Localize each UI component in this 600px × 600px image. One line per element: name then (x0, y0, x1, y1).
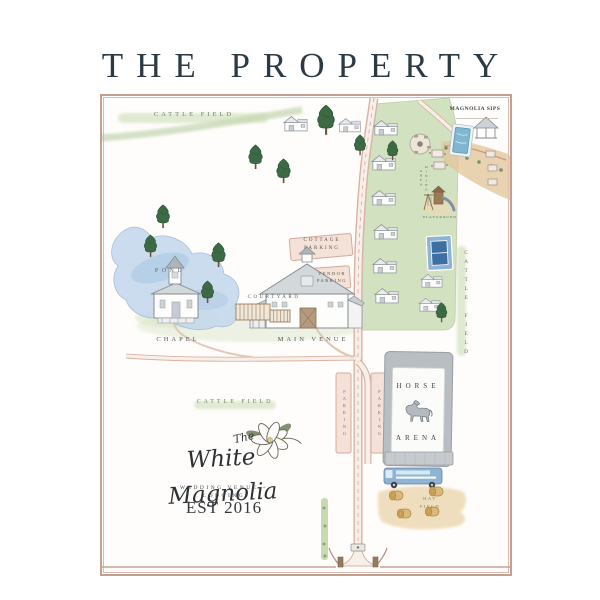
hedge (321, 498, 328, 560)
label-dining-area: DINING AREA (419, 158, 427, 198)
page-title: THE PROPERTY (0, 46, 600, 86)
entry-gate (329, 544, 387, 567)
label-hay-field: HAY FIELD (414, 495, 446, 510)
label-chapel: CHAPEL (150, 335, 206, 345)
label-courtyard: COURTYARD (242, 294, 306, 302)
label-arena: ARENA (392, 433, 444, 444)
equipment-shed (385, 452, 453, 465)
label-cottage-parking: COTTAGE PARKING (298, 237, 346, 252)
label-vendor-parking: VENDOR PARKING (314, 271, 350, 285)
label-horse: HORSE (392, 381, 444, 392)
bus (384, 468, 442, 488)
label-pond: POND (142, 267, 198, 276)
label-cattle-field-right: CATTLE FIELD (460, 248, 472, 360)
label-cattle-field-bottom: CATTLE FIELD (196, 398, 274, 407)
label-main-venue: MAIN VENUE (276, 335, 350, 345)
page: THE PROPERTY (0, 0, 600, 600)
map-frame: CATTLE FIELD MAGNOLIA SIPS DINING AREA P… (100, 94, 512, 576)
label-parking-left: PARKING (336, 376, 351, 450)
pavilion (474, 117, 498, 138)
logo-established: EST 2016 (158, 495, 290, 521)
pickleball-court (426, 235, 453, 270)
label-playground: PLAYGROUND (418, 215, 462, 220)
label-cattle-field-top: CATTLE FIELD (120, 110, 268, 120)
horse-arena (383, 351, 453, 466)
pool (449, 124, 474, 157)
label-parking-right: PARKING (371, 376, 386, 450)
label-magnolia-sips: MAGNOLIA SIPS (438, 105, 512, 113)
